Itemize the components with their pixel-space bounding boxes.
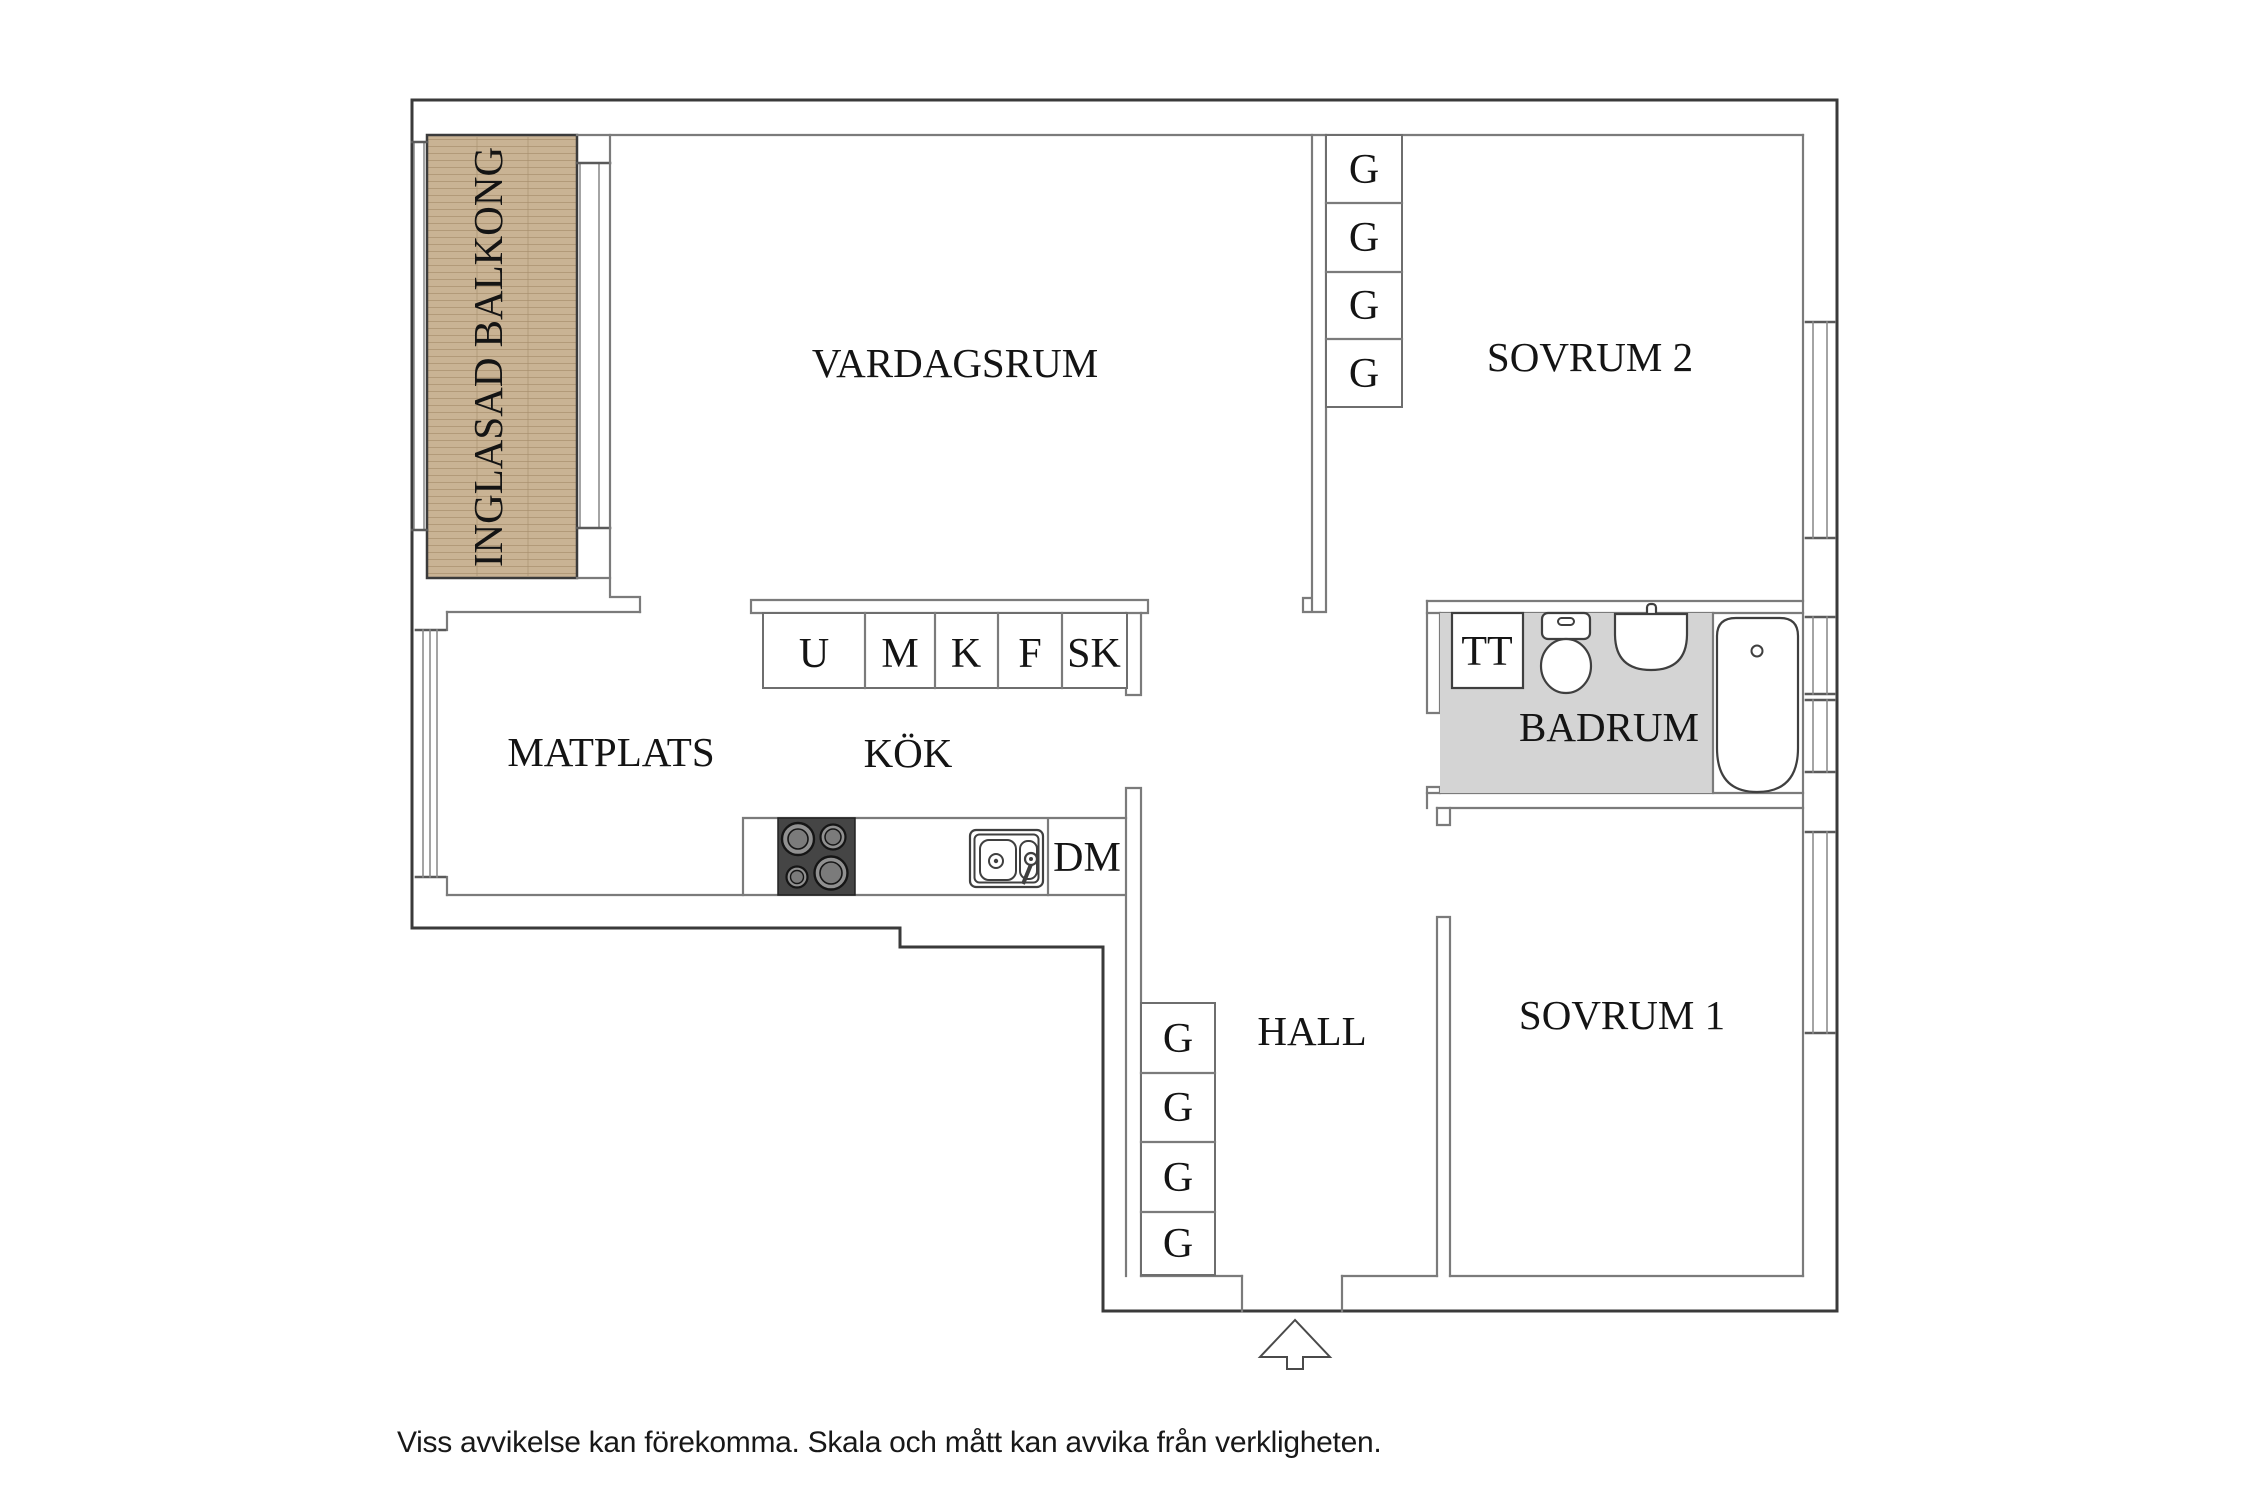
wardrobe-label: G [1349, 351, 1379, 397]
kitchen-cabinet-row: U M K F SK [763, 613, 1127, 688]
wardrobe-label: G [1163, 1016, 1193, 1062]
wardrobe-label: G [1163, 1221, 1193, 1267]
stove [778, 818, 855, 895]
kitchen-counter: DM [743, 818, 1126, 895]
bathtub [1717, 618, 1798, 792]
bedroom2-label: SOVRUM 2 [1487, 334, 1693, 380]
living-room-label: VARDAGSRUM [812, 340, 1098, 386]
balcony-label: INGLASAD BALKONG [465, 147, 511, 567]
balcony-glazing-right [577, 163, 610, 528]
floor-plan-page: INGLASAD BALKONG [0, 0, 2250, 1500]
entrance-arrow-icon [1260, 1320, 1330, 1369]
wardrobe-column-bedroom2: G G G G [1326, 135, 1402, 407]
wardrobe-label: G [1349, 283, 1379, 329]
hall-label: HALL [1257, 1008, 1366, 1054]
toilet [1541, 613, 1591, 693]
wardrobe-label: G [1163, 1155, 1193, 1201]
bedroom1-label: SOVRUM 1 [1519, 992, 1725, 1038]
wardrobe-label: G [1349, 147, 1379, 193]
kitchen-sink [970, 830, 1043, 887]
dishwasher-label: DM [1053, 835, 1121, 881]
balcony-area: INGLASAD BALKONG [412, 135, 610, 578]
windows-right-wall [1805, 322, 1836, 1033]
cabinet-label-m: M [881, 631, 918, 677]
floor-plan-drawing: INGLASAD BALKONG [0, 0, 2250, 1500]
bathroom-label: BADRUM [1519, 704, 1699, 750]
cabinet-label-k: K [951, 631, 981, 677]
washbasin [1615, 604, 1687, 670]
wardrobe-label: G [1349, 215, 1379, 261]
wardrobe-label: G [1163, 1085, 1193, 1131]
window-dining [414, 630, 446, 877]
wardrobe-column-hall: G G G G [1141, 1003, 1215, 1275]
balcony-glazing-left [412, 142, 427, 530]
bathroom-area: TT [1440, 604, 1798, 793]
kitchen-label: KÖK [864, 730, 953, 776]
cabinet-label-f: F [1018, 631, 1041, 677]
dining-label: MATPLATS [507, 729, 714, 775]
dryer-label: TT [1461, 629, 1512, 675]
footer-disclaimer: Viss avvikelse kan förekomma. Skala och … [397, 1426, 1381, 1459]
cabinet-label-u: U [799, 631, 829, 677]
cabinet-label-sk: SK [1067, 631, 1121, 677]
